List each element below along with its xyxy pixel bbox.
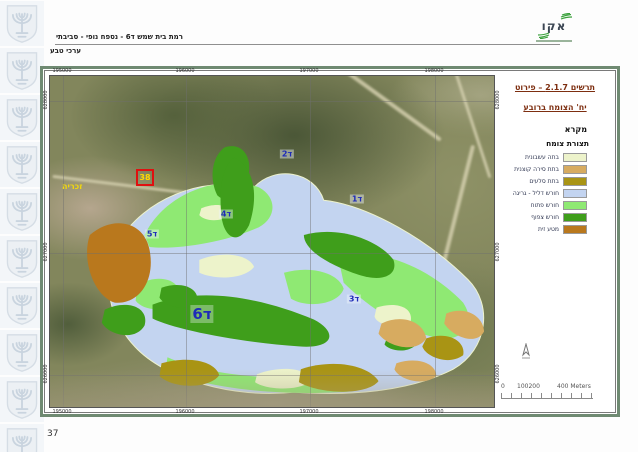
map-inner-border: 38 זכריה ד2ד1ד4ד5ד3ד61950001960001970001… xyxy=(44,70,616,413)
legend-item: בתת סירה קוצנית xyxy=(497,163,613,175)
state-emblem-icon xyxy=(0,189,44,234)
state-emblem-icon xyxy=(0,330,44,375)
scale-label: 100200 xyxy=(517,383,540,390)
legend-label: בתה עשבונית xyxy=(525,154,559,161)
legend-label: בתת סלעים xyxy=(529,178,559,185)
map-frame: 38 זכריה ד2ד1ד4ד5ד3ד61950001960001970001… xyxy=(40,66,620,417)
menorah-icon xyxy=(2,332,42,374)
menorah-icon xyxy=(2,3,42,45)
site-38-box: 38 xyxy=(136,169,154,186)
document-title: רמת בית שמש ד6 - נספח נופי - סביבתי xyxy=(56,33,183,41)
menorah-icon xyxy=(2,191,42,233)
legend-swatch xyxy=(563,153,587,162)
header-divider xyxy=(55,44,560,45)
map-unit-label: ד1 xyxy=(350,195,364,204)
menorah-icon xyxy=(2,426,42,452)
legend-item: מטע זית xyxy=(497,223,613,235)
state-emblem-icon xyxy=(0,377,44,422)
grid-coordinate-label: 628000 xyxy=(43,90,49,109)
menorah-icon xyxy=(2,50,42,92)
legend-item: בתה עשבונית xyxy=(497,151,613,163)
map-annotations: 38 זכריה ד2ד1ד4ד5ד3ד61950001960001970001… xyxy=(49,75,495,408)
map-unit-label: ד6 xyxy=(190,305,213,323)
grid-coordinate-label: 196000 xyxy=(175,68,194,74)
legend-swatch xyxy=(563,201,587,210)
eco-logo: אקו xyxy=(533,13,575,42)
legend-label: בתת סירה קוצנית xyxy=(514,166,559,173)
legend-swatch xyxy=(563,189,587,198)
scale-label: 0 xyxy=(501,383,505,390)
state-emblem-icon xyxy=(0,48,44,93)
document-subtitle: ערכי טבע xyxy=(50,47,81,55)
menorah-icon xyxy=(2,144,42,186)
state-emblem-icon xyxy=(0,95,44,140)
legend-swatch xyxy=(563,177,587,186)
map-legend: תרשים 2.1.7 – פירוט יח' הצומח ברובע מקרא… xyxy=(497,75,613,408)
menorah-icon xyxy=(2,285,42,327)
legend-item: חורש צפוף xyxy=(497,211,613,223)
north-arrow-icon xyxy=(519,343,533,361)
legend-label: חורש דליל - גריגה xyxy=(513,190,559,197)
map-area: 38 זכריה ד2ד1ד4ד5ד3ד61950001960001970001… xyxy=(49,75,495,408)
legend-group-title: תצורת צומח xyxy=(546,139,589,148)
grid-coordinate-label: 197000 xyxy=(299,409,318,415)
state-emblem-icon xyxy=(0,142,44,187)
legend-item: חורש פתוח xyxy=(497,199,613,211)
legend-item: בתת סלעים xyxy=(497,175,613,187)
state-emblem-icon xyxy=(0,424,44,452)
page-number: 37 xyxy=(47,429,58,439)
map-unit-label: ד3 xyxy=(347,295,361,304)
state-emblem-icon xyxy=(0,1,44,46)
grid-coordinate-label: 197000 xyxy=(299,68,318,74)
document-page: רמת בית שמש ד6 - נספח נופי - סביבתי ערכי… xyxy=(0,0,638,452)
grid-coordinate-label: 196000 xyxy=(175,409,194,415)
map-unit-label: ד4 xyxy=(219,210,233,219)
state-emblem-icon xyxy=(0,236,44,281)
logo-underline xyxy=(536,40,572,42)
legend-item: חורש דליל - גריגה xyxy=(497,187,613,199)
scale-label: 400 Meters xyxy=(557,383,591,390)
map-unit-label: ד5 xyxy=(145,230,159,239)
legend-swatch xyxy=(563,213,587,222)
grid-coordinate-label: 195000 xyxy=(52,409,71,415)
grid-coordinate-label: 198000 xyxy=(424,409,443,415)
map-unit-label: ד2 xyxy=(280,150,294,159)
legend-swatch xyxy=(563,225,587,234)
grid-coordinate-label: 198000 xyxy=(424,68,443,74)
scale-labels: 0100200400 Meters xyxy=(501,383,609,391)
legend-swatch xyxy=(563,165,587,174)
menorah-icon xyxy=(2,97,42,139)
scale-ruler xyxy=(501,393,593,399)
scale-bar: 0100200400 Meters xyxy=(501,383,609,399)
legend-label: חורש צפוף xyxy=(531,214,559,221)
menorah-icon xyxy=(2,238,42,280)
emblem-sidebar xyxy=(0,0,45,452)
legend-header: מקרא xyxy=(565,125,587,134)
figure-title: תרשים 2.1.7 – פירוט xyxy=(501,83,609,92)
legend-label: חורש פתוח xyxy=(531,202,559,209)
legend-list: בתה עשבונית בתת סירה קוצנית בתת סלעים חו… xyxy=(497,151,613,235)
state-emblem-icon xyxy=(0,283,44,328)
logo-text: אקו xyxy=(533,20,575,32)
grid-coordinate-label: 195000 xyxy=(52,68,71,74)
grid-coordinate-label: 627000 xyxy=(43,242,49,261)
legend-label: מטע זית xyxy=(538,226,559,233)
grid-coordinate-label: 626000 xyxy=(43,364,49,383)
leaf-icon xyxy=(537,32,550,39)
place-label-zekharia: זכריה xyxy=(62,182,82,191)
figure-subtitle: יח' הצומח ברובע xyxy=(501,103,609,112)
menorah-icon xyxy=(2,379,42,421)
